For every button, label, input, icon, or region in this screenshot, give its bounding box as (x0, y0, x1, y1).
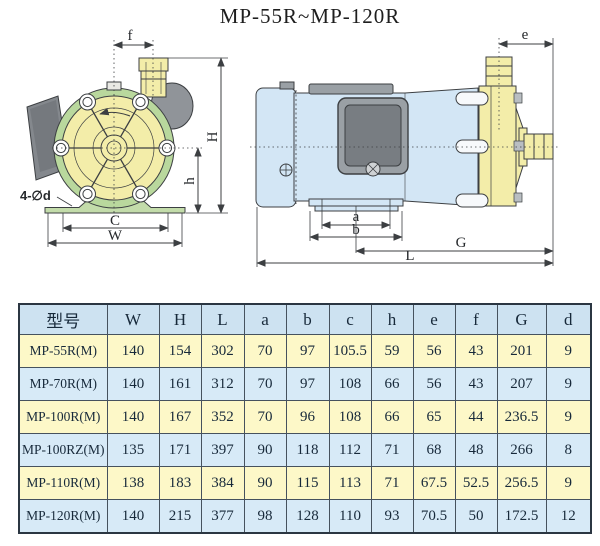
header-row: 型号WHLabchefGd (19, 304, 591, 335)
value-cell: 71 (371, 434, 413, 467)
value-cell: 98 (244, 500, 286, 534)
table-body: MP-55R(M)1401543027097105.55956432019MP-… (19, 335, 591, 534)
value-cell: 67.5 (413, 467, 455, 500)
motor-rear-cap (256, 88, 296, 207)
value-cell: 108 (329, 401, 371, 434)
value-cell: 71 (371, 467, 413, 500)
table-row: MP-100R(M)1401673527096108666544236.59 (19, 401, 591, 434)
dim-W-label: W (108, 228, 123, 244)
value-cell: 171 (159, 434, 201, 467)
value-cell: 236.5 (497, 401, 546, 434)
value-cell: 68 (413, 434, 455, 467)
value-cell: 52.5 (455, 467, 497, 500)
value-cell: 154 (159, 335, 201, 368)
col-header-9: f (455, 304, 497, 335)
value-cell: 172.5 (497, 500, 546, 534)
value-cell: 135 (107, 434, 159, 467)
value-cell: 112 (329, 434, 371, 467)
dim-e-label: e (522, 27, 529, 43)
dim-G-label: G (456, 235, 467, 251)
model-cell: MP-110R(M) (19, 467, 107, 500)
value-cell: 66 (371, 368, 413, 401)
col-header-8: e (413, 304, 455, 335)
dimension-table: 型号WHLabchefGd MP-55R(M)1401543027097105.… (18, 303, 592, 534)
value-cell: 167 (159, 401, 201, 434)
value-cell: 66 (371, 401, 413, 434)
value-cell: 9 (546, 368, 591, 401)
model-cell: MP-120R(M) (19, 500, 107, 534)
motor-top-strip (309, 84, 393, 94)
model-cell: MP-100R(M) (19, 401, 107, 434)
front-view-drawing (27, 40, 228, 247)
value-cell: 110 (329, 500, 371, 534)
col-header-6: c (329, 304, 371, 335)
value-cell: 138 (107, 467, 159, 500)
pump-drawing: f H h C W 4-∅d (0, 0, 600, 300)
value-cell: 90 (244, 434, 286, 467)
mounting-holes-label: 4-∅d (20, 188, 51, 203)
value-cell: 201 (497, 335, 546, 368)
value-cell: 43 (455, 335, 497, 368)
value-cell: 9 (546, 467, 591, 500)
value-cell: 12 (546, 500, 591, 534)
value-cell: 312 (201, 368, 244, 401)
table-row: MP-120R(M)140215377981281109370.550172.5… (19, 500, 591, 534)
value-cell: 44 (455, 401, 497, 434)
value-cell: 140 (107, 500, 159, 534)
dim-b-label: b (352, 222, 360, 238)
dimension-table-wrap: 型号WHLabchefGd MP-55R(M)1401543027097105.… (18, 303, 592, 534)
model-cell: MP-100RZ(M) (19, 434, 107, 467)
dim-H-label: H (205, 131, 221, 142)
page: MP-55R~MP-120R (0, 0, 600, 546)
col-header-4: a (244, 304, 286, 335)
value-cell: 59 (371, 335, 413, 368)
table-row: MP-55R(M)1401543027097105.55956432019 (19, 335, 591, 368)
value-cell: 256.5 (497, 467, 546, 500)
value-cell: 97 (286, 368, 329, 401)
dim-L-label: L (405, 248, 414, 264)
value-cell: 97 (286, 335, 329, 368)
value-cell: 43 (455, 368, 497, 401)
value-cell: 8 (546, 434, 591, 467)
ground-symbol-icon (280, 164, 292, 176)
col-header-1: W (107, 304, 159, 335)
col-header-7: h (371, 304, 413, 335)
value-cell: 215 (159, 500, 201, 534)
value-cell: 96 (286, 401, 329, 434)
value-cell: 50 (455, 500, 497, 534)
rear-cap-nub (280, 82, 294, 89)
value-cell: 105.5 (329, 335, 371, 368)
value-cell: 70 (244, 335, 286, 368)
value-cell: 115 (286, 467, 329, 500)
table-row: MP-100RZ(M)135171397901181127168482668 (19, 434, 591, 467)
value-cell: 56 (413, 368, 455, 401)
value-cell: 113 (329, 467, 371, 500)
value-cell: 302 (201, 335, 244, 368)
side-view-drawing (250, 38, 560, 267)
value-cell: 384 (201, 467, 244, 500)
table-header: 型号WHLabchefGd (19, 304, 591, 335)
value-cell: 397 (201, 434, 244, 467)
value-cell: 207 (497, 368, 546, 401)
dim-h-label: h (182, 177, 198, 185)
value-cell: 9 (546, 401, 591, 434)
value-cell: 65 (413, 401, 455, 434)
value-cell: 161 (159, 368, 201, 401)
value-cell: 352 (201, 401, 244, 434)
col-header-5: b (286, 304, 329, 335)
value-cell: 90 (244, 467, 286, 500)
value-cell: 140 (107, 401, 159, 434)
value-cell: 140 (107, 368, 159, 401)
col-header-2: H (159, 304, 201, 335)
col-header-11: d (546, 304, 591, 335)
value-cell: 56 (413, 335, 455, 368)
dim-f-label: f (128, 28, 133, 44)
model-cell: MP-70R(M) (19, 368, 107, 401)
value-cell: 266 (497, 434, 546, 467)
col-header-3: L (201, 304, 244, 335)
front-outlet-pipe (139, 58, 168, 97)
table-row: MP-70R(M)14016131270971086656432079 (19, 368, 591, 401)
value-cell: 93 (371, 500, 413, 534)
value-cell: 108 (329, 368, 371, 401)
value-cell: 70 (244, 401, 286, 434)
value-cell: 118 (286, 434, 329, 467)
value-cell: 48 (455, 434, 497, 467)
terminal-box (338, 98, 408, 176)
value-cell: 377 (201, 500, 244, 534)
model-cell: MP-55R(M) (19, 335, 107, 368)
value-cell: 140 (107, 335, 159, 368)
value-cell: 70.5 (413, 500, 455, 534)
value-cell: 128 (286, 500, 329, 534)
col-header-10: G (497, 304, 546, 335)
dim-C-label: C (110, 213, 120, 229)
value-cell: 70 (244, 368, 286, 401)
value-cell: 9 (546, 335, 591, 368)
table-row: MP-110R(M)138183384901151137167.552.5256… (19, 467, 591, 500)
col-header-0: 型号 (19, 304, 107, 335)
value-cell: 183 (159, 467, 201, 500)
